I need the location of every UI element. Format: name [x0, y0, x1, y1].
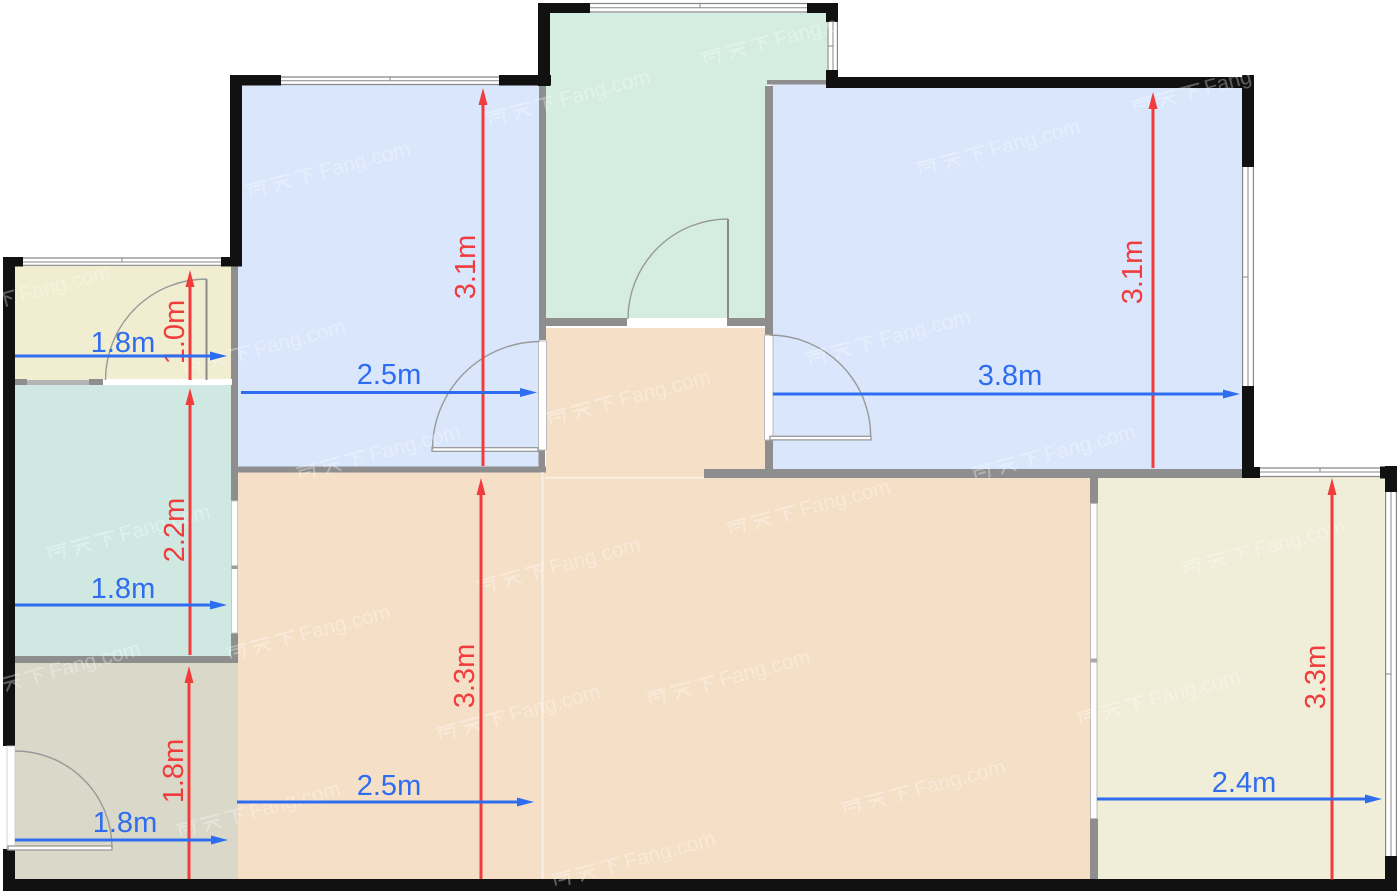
svg-text:1.8m: 1.8m [93, 807, 157, 839]
svg-text:1.8m: 1.8m [91, 327, 155, 359]
svg-text:1.8m: 1.8m [91, 573, 155, 605]
svg-text:2.2m: 2.2m [159, 498, 191, 562]
svg-text:2.4m: 2.4m [1212, 767, 1276, 799]
svg-text:1.8m: 1.8m [158, 739, 190, 803]
svg-text:3.1m: 3.1m [1117, 240, 1149, 304]
svg-text:2.5m: 2.5m [357, 359, 421, 391]
svg-text:3.1m: 3.1m [450, 235, 482, 299]
svg-text:3.3m: 3.3m [1300, 645, 1332, 709]
svg-text:3.3m: 3.3m [449, 644, 481, 708]
svg-text:3.8m: 3.8m [978, 360, 1042, 392]
svg-text:2.5m: 2.5m [357, 770, 421, 802]
